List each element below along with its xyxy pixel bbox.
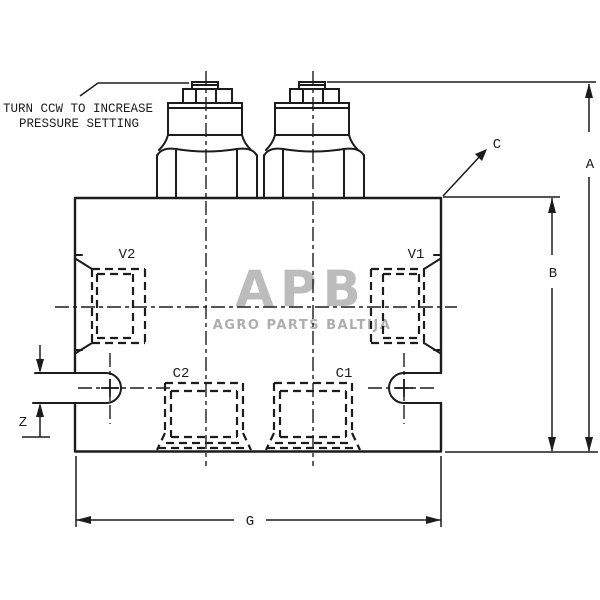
slot-center-marks (101, 379, 413, 397)
note-leader-line (80, 83, 189, 96)
technical-drawing-canvas: APB AGRO PARTS BALTIJA (0, 0, 600, 600)
dim-label-g: G (246, 514, 254, 530)
slot-cross-left (101, 379, 119, 397)
port-label-c1: C1 (336, 366, 353, 382)
valve-body-right (275, 103, 349, 135)
cartridge-valve-right (264, 82, 364, 198)
valve-locknut-left (183, 89, 232, 103)
v1-port-mouth (424, 255, 441, 353)
cartridge-valve-left (157, 82, 257, 198)
valve-hex-right (264, 149, 364, 198)
g-arrow-left (76, 516, 91, 524)
watermark: APB AGRO PARTS BALTIJA (213, 260, 392, 333)
c-arrow-line (443, 154, 482, 196)
a-arrow-down (585, 437, 593, 452)
v2-port-mouth (75, 255, 92, 353)
b-arrow-down (548, 437, 556, 452)
g-arrow-right (426, 516, 441, 524)
port-label-c2: C2 (173, 366, 190, 382)
slot-centerlines-left (78, 353, 172, 424)
dim-label-b: B (549, 266, 557, 282)
valve-cap-left (192, 82, 218, 89)
valve-block-drawing: APB AGRO PARTS BALTIJA (0, 0, 600, 600)
b-arrow-up (548, 198, 556, 213)
v2-port-hidden (92, 269, 145, 343)
a-arrow-up (585, 83, 593, 98)
valve-locknut-right (290, 89, 339, 103)
watermark-subtitle: AGRO PARTS BALTIJA (213, 318, 392, 333)
g-extension-lines (76, 456, 441, 527)
valve-cap-right (299, 82, 325, 89)
valve-hex-left (157, 149, 257, 198)
slot-cross-right (395, 379, 413, 397)
watermark-logo: APB (235, 260, 366, 318)
port-label-v1: V1 (408, 247, 425, 263)
dim-label-a: A (586, 157, 595, 173)
port-label-v2: V2 (119, 247, 136, 263)
dim-label-c: C (493, 137, 501, 153)
valve-body-left (168, 103, 242, 135)
z-arrow-up (36, 403, 44, 417)
note-line-2: PRESSURE SETTING (19, 117, 139, 131)
z-arrow-down (36, 359, 44, 373)
dim-label-z: Z (19, 415, 27, 431)
note-line-1: TURN CCW TO INCREASE (3, 102, 153, 116)
c2-port-hidden (157, 383, 251, 450)
